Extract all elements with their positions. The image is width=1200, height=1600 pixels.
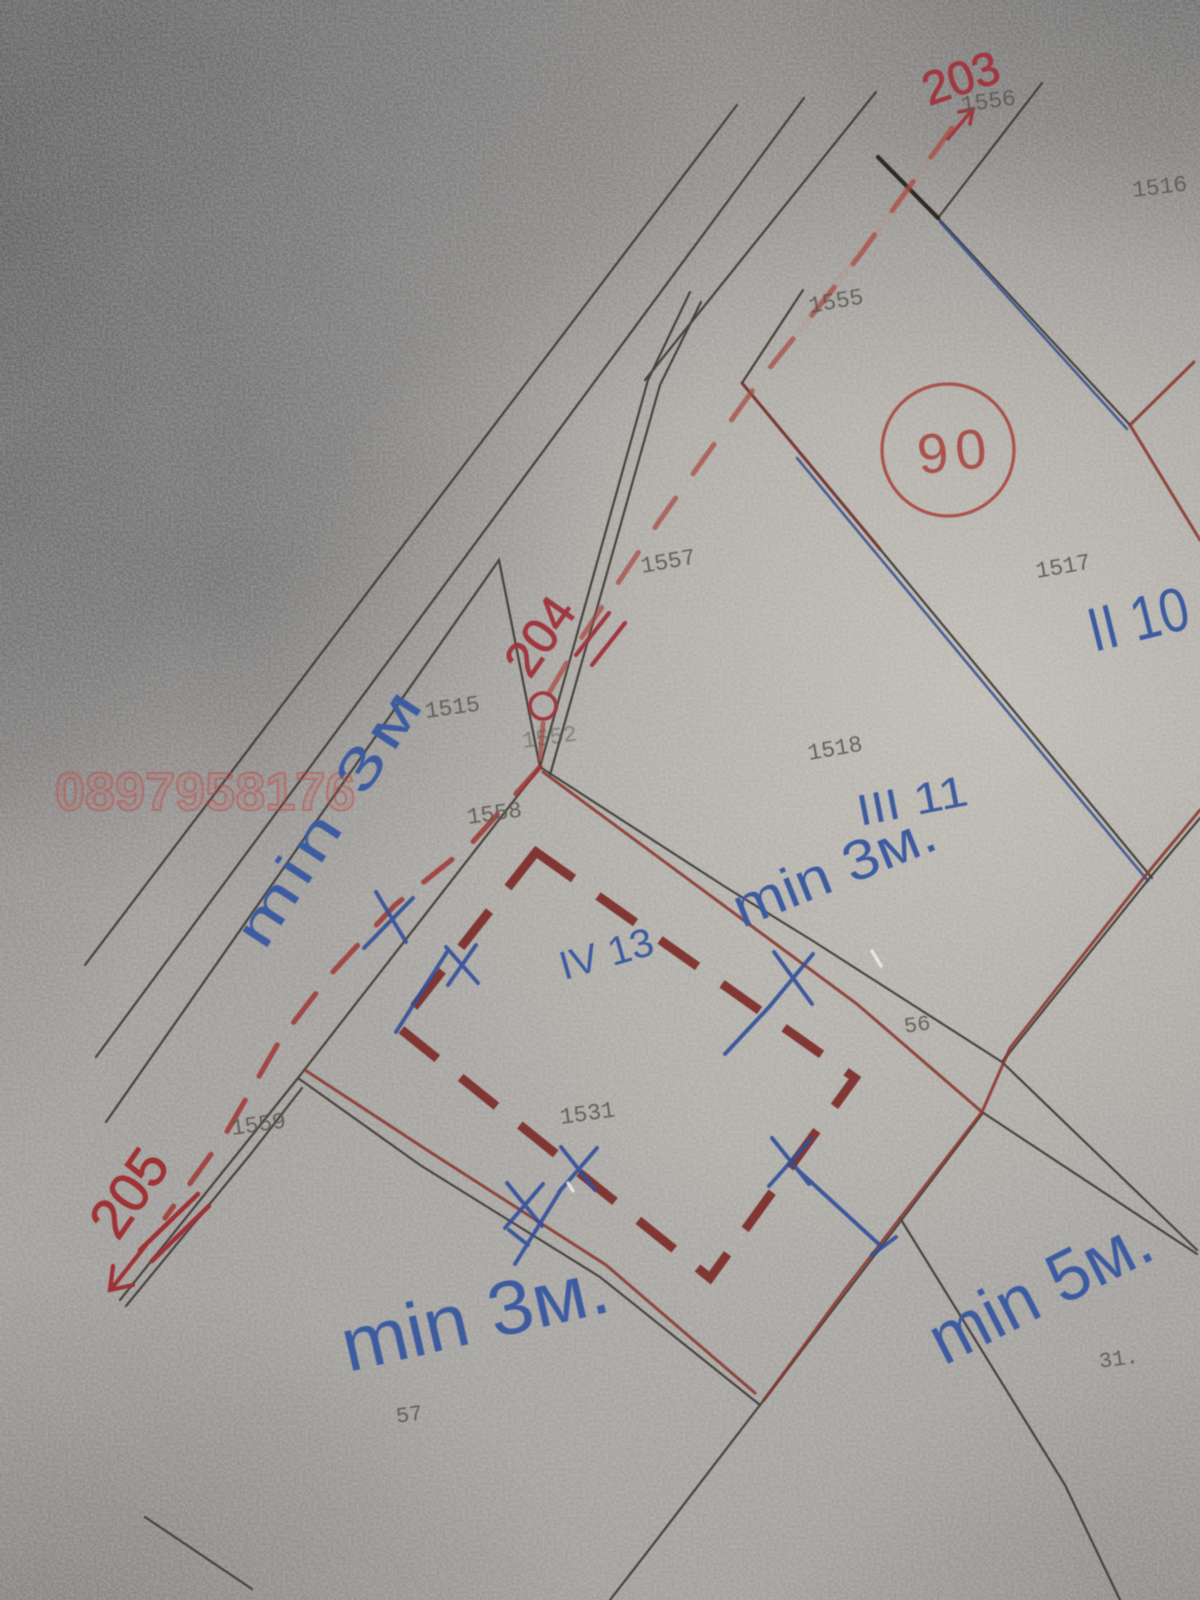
- svg-text:56: 56: [902, 1012, 932, 1040]
- svg-text:90: 90: [914, 415, 996, 486]
- svg-text:57: 57: [394, 1402, 424, 1430]
